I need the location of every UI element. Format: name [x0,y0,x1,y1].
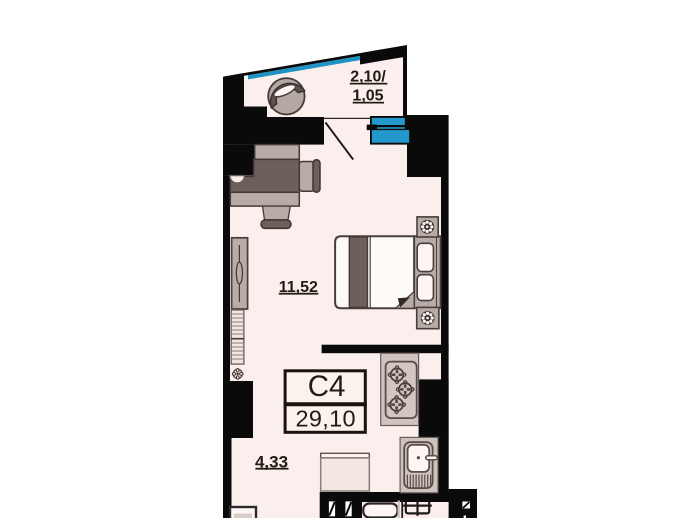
svg-text:C4: C4 [308,370,346,403]
svg-text:29,10: 29,10 [296,406,356,432]
